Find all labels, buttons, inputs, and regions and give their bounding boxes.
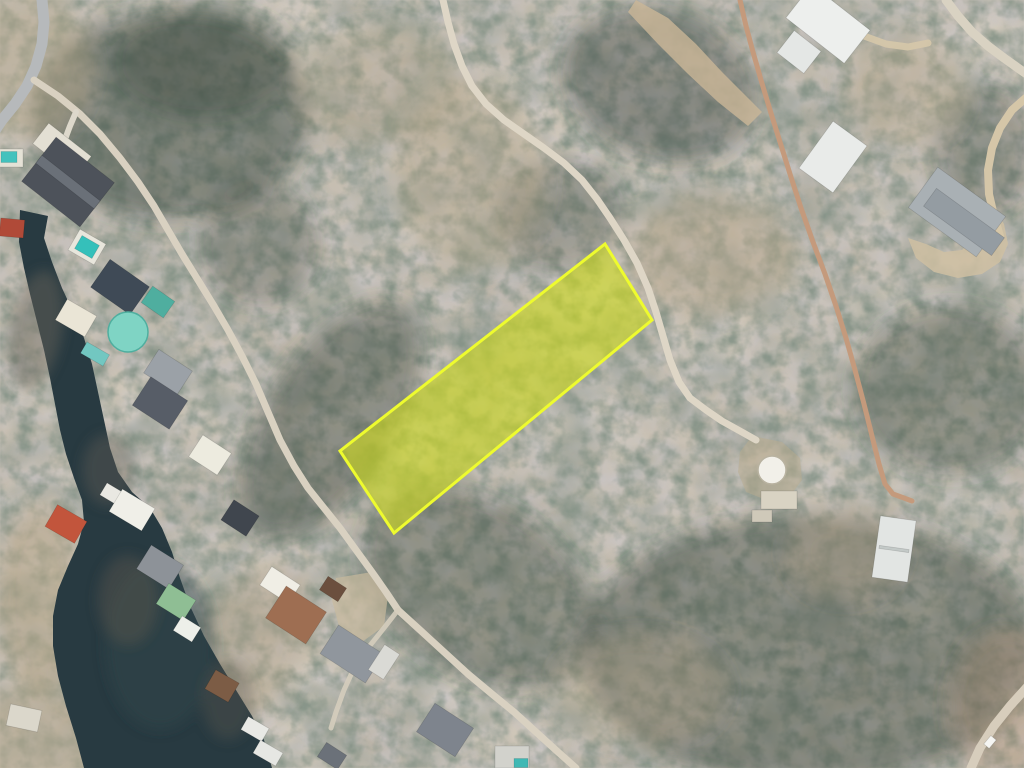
- terrain-patch: [845, 35, 965, 145]
- concrete-pad: [752, 510, 772, 522]
- swimming-pool: [514, 759, 528, 768]
- terrain-patch: [200, 185, 320, 305]
- terrain-patch: [555, 635, 725, 745]
- concrete-pad: [761, 491, 797, 509]
- terrain-patch: [295, 25, 465, 145]
- swimming-pool: [1, 152, 17, 163]
- structure-red: [0, 218, 25, 238]
- aerial-map: [0, 0, 1024, 768]
- octagon-teal-roof: [108, 312, 148, 352]
- aerial-scene: [0, 0, 1024, 768]
- terrain-patch: [115, 7, 295, 117]
- water-tank: [758, 456, 786, 484]
